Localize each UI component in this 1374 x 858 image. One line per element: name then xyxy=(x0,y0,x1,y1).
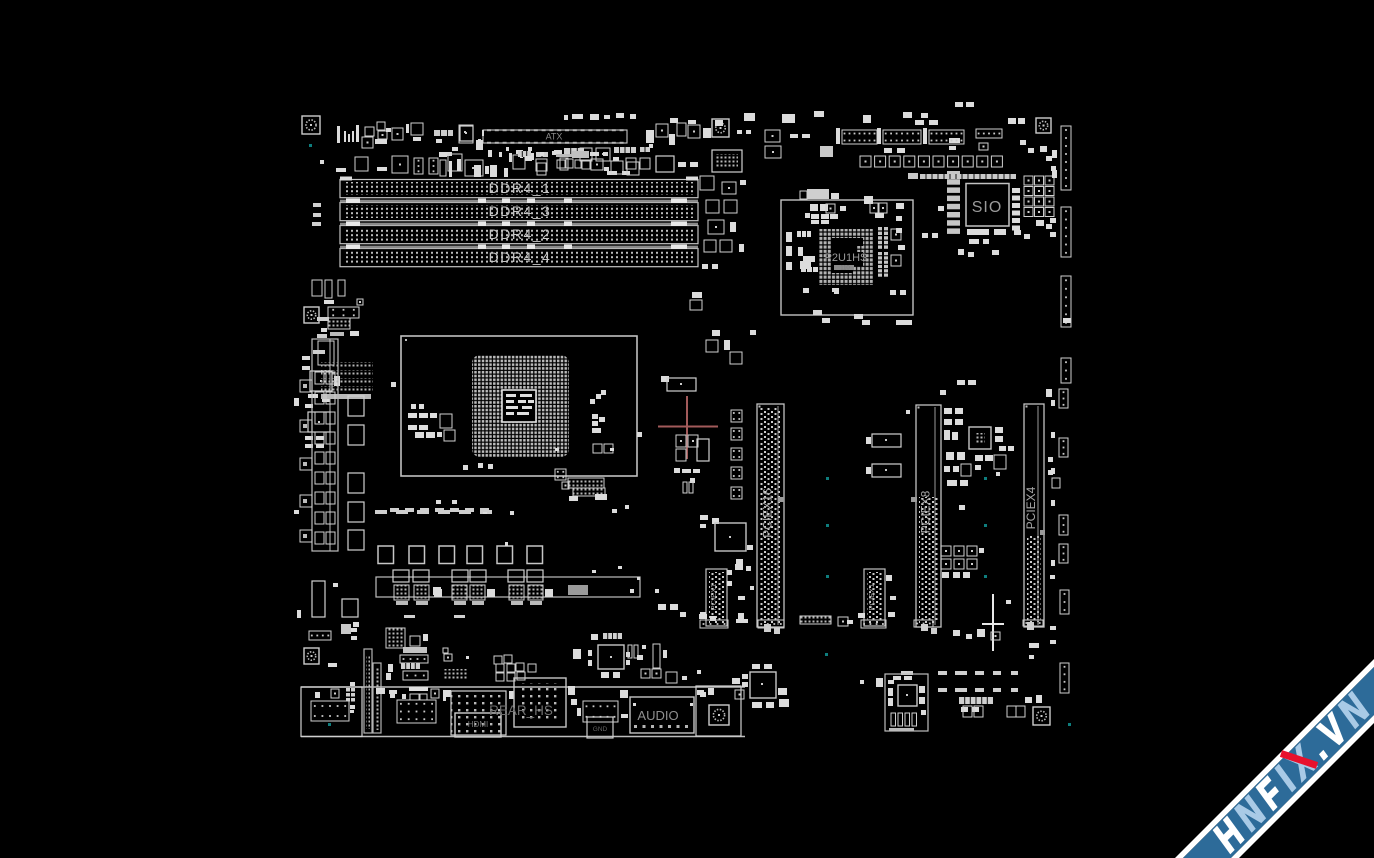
svg-text:P2U1HS: P2U1HS xyxy=(825,252,868,264)
svg-text:HDMI: HDMI xyxy=(468,720,488,729)
svg-text:PCIEX1: PCIEX1 xyxy=(867,584,876,611)
svg-text:110: 110 xyxy=(840,266,850,272)
svg-text:PCIEX16: PCIEX16 xyxy=(761,488,775,538)
svg-text:AUDIO: AUDIO xyxy=(637,708,678,723)
svg-text:DDR4_4: DDR4_4 xyxy=(489,249,552,265)
svg-text:PCIEX1: PCIEX1 xyxy=(709,584,718,611)
svg-text:DDR4_3: DDR4_3 xyxy=(489,203,552,219)
svg-text:PCIEX8: PCIEX8 xyxy=(919,490,933,533)
svg-text:REAR_HS: REAR_HS xyxy=(489,703,553,718)
svg-text:ATX: ATX xyxy=(546,132,563,142)
svg-text:DDR4_2: DDR4_2 xyxy=(489,226,552,242)
svg-text:GND: GND xyxy=(593,726,608,733)
svg-text:DDR4_1: DDR4_1 xyxy=(489,180,552,196)
svg-text:SIO: SIO xyxy=(972,199,1003,216)
svg-text:PCIEX4: PCIEX4 xyxy=(1024,486,1038,529)
